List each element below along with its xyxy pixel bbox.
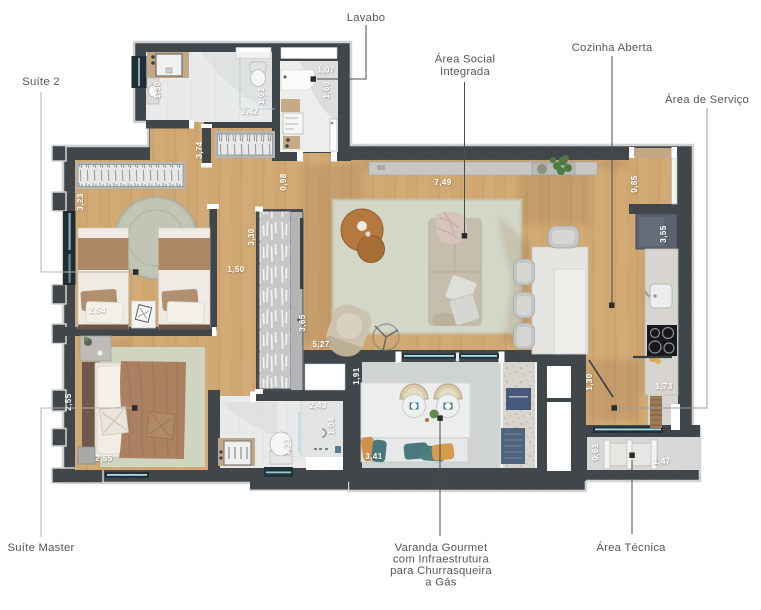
svg-text:5,27: 5,27 — [312, 340, 329, 349]
svg-text:com Infraestrutura: com Infraestrutura — [393, 554, 490, 566]
svg-text:7,49: 7,49 — [434, 178, 451, 187]
svg-text:3,41: 3,41 — [365, 452, 382, 461]
svg-text:1,60: 1,60 — [322, 81, 331, 98]
svg-text:1,47: 1,47 — [653, 457, 670, 466]
svg-text:0,61: 0,61 — [591, 443, 600, 460]
svg-text:3,23: 3,23 — [76, 193, 85, 210]
svg-text:Integrada: Integrada — [440, 66, 490, 78]
svg-text:2,43: 2,43 — [309, 401, 326, 410]
svg-text:1,30: 1,30 — [153, 81, 162, 98]
svg-text:Área Social: Área Social — [435, 53, 496, 66]
svg-text:2,55: 2,55 — [95, 454, 112, 463]
svg-text:1,07: 1,07 — [317, 66, 334, 75]
svg-text:1,73: 1,73 — [655, 382, 672, 391]
svg-text:1,30: 1,30 — [585, 373, 594, 390]
svg-text:1,04: 1,04 — [327, 417, 336, 434]
svg-text:Suíte 2: Suíte 2 — [22, 76, 60, 88]
svg-text:a Gás: a Gás — [425, 577, 456, 589]
svg-text:2,54: 2,54 — [89, 306, 106, 315]
svg-text:2,42: 2,42 — [241, 107, 258, 116]
svg-text:Área Técnica: Área Técnica — [596, 541, 666, 554]
svg-text:Varanda Gourmet: Varanda Gourmet — [395, 542, 488, 554]
svg-text:0,98: 0,98 — [279, 173, 288, 190]
svg-text:Suíte Master: Suíte Master — [7, 542, 74, 554]
svg-text:Área de Serviço: Área de Serviço — [665, 93, 749, 106]
svg-text:1,01: 1,01 — [257, 87, 266, 104]
svg-text:1,91: 1,91 — [352, 367, 361, 384]
svg-text:3,30: 3,30 — [247, 228, 256, 245]
svg-text:3,65: 3,65 — [298, 314, 307, 331]
svg-text:1,33: 1,33 — [283, 438, 292, 455]
svg-text:3,55: 3,55 — [659, 225, 668, 242]
svg-text:1,50: 1,50 — [227, 265, 244, 274]
svg-text:Cozinha Aberta: Cozinha Aberta — [572, 42, 653, 54]
svg-text:para Churrasqueira: para Churrasqueira — [390, 565, 492, 577]
svg-text:Lavabo: Lavabo — [347, 12, 386, 24]
svg-text:0,85: 0,85 — [630, 175, 639, 192]
svg-text:3,74: 3,74 — [195, 141, 204, 158]
